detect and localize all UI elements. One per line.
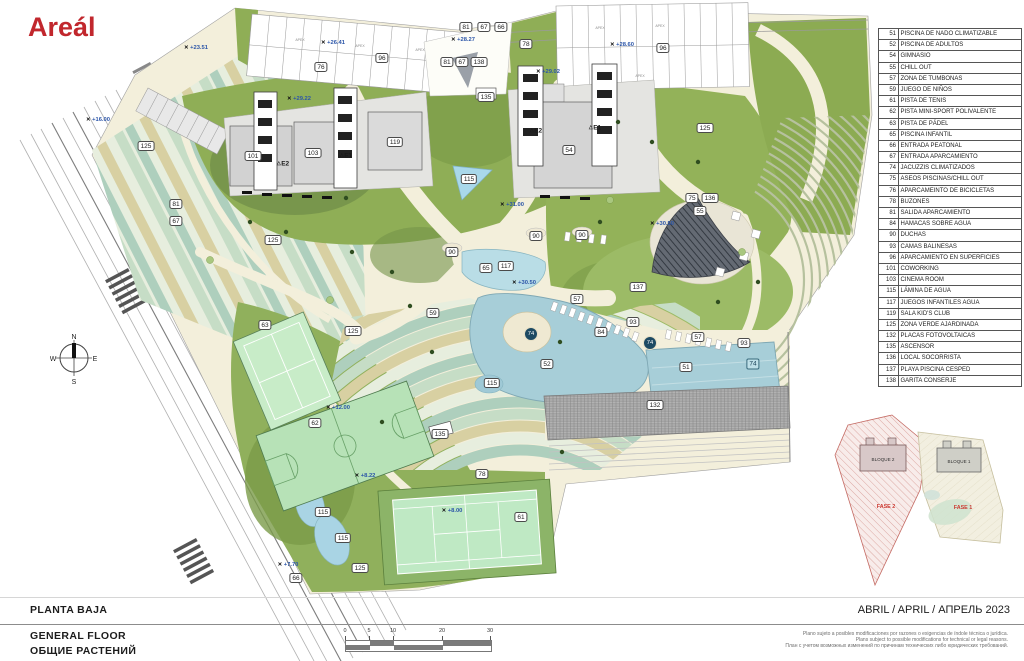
legend-row: 90DUCHAS (878, 230, 1022, 241)
legend-row-number: 90 (879, 230, 899, 240)
compass-s: S (72, 379, 77, 386)
legend-row-label: PISTA MINI-SPORT POLIVALENTE (899, 107, 997, 117)
legend-row-label: ZONA VERDE AJARDINADA (899, 320, 979, 330)
legend-row: 138GARITA CONSERJE (878, 376, 1022, 387)
legend-row-label: SALA KID'S CLUB (899, 309, 951, 319)
legend-row-label: APARCAMIENTO EN SUPERFICIES (899, 253, 1000, 263)
footer-divider-top (0, 597, 1024, 598)
compass-e: E (93, 356, 98, 363)
legend-row: 137PLAYA PISCINA CESPED (878, 365, 1022, 376)
legend-row: 57ZONA DE TUMBONAS (878, 74, 1022, 85)
legend-row-label: PISCINA DE ADULTOS (899, 40, 964, 50)
legend-row-number: 59 (879, 85, 899, 95)
legend-row-label: CAMAS BALINESAS (899, 242, 957, 252)
legend-row-label: HAMACAS SOBRE AGUA (899, 219, 972, 229)
legend-row-number: 135 (879, 342, 899, 352)
legend-row: 135ASCENSOR (878, 342, 1022, 353)
legend-row-number: 52 (879, 40, 899, 50)
legend-row-label: JUEGOS INFANTILES AGUA (899, 298, 980, 308)
scale-segment (370, 641, 394, 646)
legend-row: 74JACUZZIS CLIMATIZADOS (878, 163, 1022, 174)
legend-row-label: APARCAMEINTO DE BICICLETAS (899, 186, 995, 196)
scale-segment (346, 645, 370, 650)
compass-rose: N E S W (50, 330, 98, 386)
plan-title-ru: ОБЩИЕ РАСТЕНИЙ (30, 645, 136, 657)
scale-tick-label: 10 (390, 628, 396, 634)
keyplan-bloque2-label: BLOQUE 2 (872, 457, 895, 462)
scale-tick (369, 636, 370, 640)
legend-row: 81SALIDA APARCAMIENTO (878, 208, 1022, 219)
legend-row-number: 137 (879, 365, 899, 375)
legend-row-label: LOCAL SOCORRISTA (899, 353, 961, 363)
legend-row-number: 54 (879, 51, 899, 61)
scale-tick-label: 0 (343, 628, 346, 634)
legend-row: 52PISCINA DE ADULTOS (878, 40, 1022, 51)
legend-row: 61PISTA DE TENIS (878, 96, 1022, 107)
legend-row-label: ENTRADA APARCAMIENTO (899, 152, 978, 162)
scale-tick (442, 636, 443, 640)
legend-row-number: 119 (879, 309, 899, 319)
legend-row: 136LOCAL SOCORRISTA (878, 353, 1022, 364)
legend-row: 125ZONA VERDE AJARDINADA (878, 320, 1022, 331)
legend-row: 75ASEOS PISCINAS/CHILL OUT (878, 174, 1022, 185)
legend-row-number: 57 (879, 74, 899, 84)
legend-row-number: 55 (879, 63, 899, 73)
page-title: Areál (28, 12, 96, 43)
legend-row: 101COWORKING (878, 264, 1022, 275)
legend-row-label: PISTA DE PÁDEL (899, 119, 949, 129)
scale-tick-label: 30 (487, 628, 493, 634)
legend-row-number: 63 (879, 119, 899, 129)
plan-date: ABRIL / APRIL / АПРЕЛЬ 2023 (858, 604, 1010, 616)
disclaimer-line-ru: План с учетом возможных изменений по при… (785, 643, 1008, 649)
legend-row: 119SALA KID'S CLUB (878, 309, 1022, 320)
scale-tick-label: 5 (367, 628, 370, 634)
legend-row-label: ZONA DE TUMBONAS (899, 74, 963, 84)
legend-row-number: 125 (879, 320, 899, 330)
scale-segment (443, 641, 491, 646)
legend-row-number: 65 (879, 130, 899, 140)
legend-row-number: 76 (879, 186, 899, 196)
legend-row-number: 61 (879, 96, 899, 106)
legend-row-label: ASEOS PISCINAS/CHILL OUT (899, 174, 984, 184)
legend-row-label: ASCENSOR (899, 342, 935, 352)
scale-tick (490, 636, 491, 640)
legend-row-label: COWORKING (899, 264, 939, 274)
legend-row: 55CHILL OUT (878, 63, 1022, 74)
keyplan-bloque1-label: BLOQUE 1 (948, 459, 971, 464)
legend-row-number: 84 (879, 219, 899, 229)
key-plan: BLOQUE 2 BLOQUE 1 FASE 2 FASE 1 (832, 400, 1018, 592)
legend-row-label: ENTRADA PEATONAL (899, 141, 962, 151)
scale-segment (394, 645, 443, 650)
legend-row-label: PLACAS FOTOVOLTAICAS (899, 331, 976, 341)
legend-row-number: 101 (879, 264, 899, 274)
legend-row: 132PLACAS FOTOVOLTAICAS (878, 331, 1022, 342)
legend-row-label: JACUZZIS CLIMATIZADOS (899, 163, 975, 173)
legend-row-number: 51 (879, 29, 899, 39)
legend-row-number: 115 (879, 286, 899, 296)
legend-row-label: SALIDA APARCAMIENTO (899, 208, 971, 218)
legend-row-label: LÁMINA DE AGUA (899, 286, 951, 296)
scale-tick (393, 636, 394, 640)
legend-row-label: DUCHAS (899, 230, 926, 240)
legend-row: 96APARCAMIENTO EN SUPERFICIES (878, 253, 1022, 264)
keyplan-fase2-label: FASE 2 (877, 504, 896, 510)
page: Areál 7696966681677881671381351011031195… (0, 0, 1024, 661)
legend-row-label: JUEGO DE NIÑOS (899, 85, 952, 95)
legend-row-label: GIMNASIO (899, 51, 931, 61)
scale-bar: 05102030 (345, 628, 493, 656)
legend-row-number: 81 (879, 208, 899, 218)
plan-title-en: GENERAL FLOOR (30, 630, 126, 642)
legend-row: 115LÁMINA DE AGUA (878, 286, 1022, 297)
legend-row: 63PISTA DE PÁDEL (878, 119, 1022, 130)
legend-row: 103CINEMA ROOM (878, 275, 1022, 286)
legend-row-label: PLAYA PISCINA CESPED (899, 365, 971, 375)
legend-row: 84HAMACAS SOBRE AGUA (878, 219, 1022, 230)
legend-table: 51PISCINA DE NADO CLIMATIZABLE52PISCINA … (878, 28, 1022, 387)
legend-row-number: 78 (879, 197, 899, 207)
keyplan-fase1-label: FASE 1 (954, 505, 973, 511)
footer-divider (0, 624, 1024, 625)
footer-disclaimer: Plano sujeto a posibles modificaciones p… (785, 631, 1008, 650)
plan-title-es: PLANTA BAJA (30, 604, 107, 616)
legend-row-label: GARITA CONSERJE (899, 376, 957, 386)
legend-row-number: 62 (879, 107, 899, 117)
legend-row-number: 132 (879, 331, 899, 341)
legend-row: 117JUEGOS INFANTILES AGUA (878, 298, 1022, 309)
compass-w: W (50, 356, 57, 363)
compass-n: N (71, 334, 76, 341)
legend-row-number: 67 (879, 152, 899, 162)
legend-row-label: CINEMA ROOM (899, 275, 944, 285)
legend-row-number: 96 (879, 253, 899, 263)
legend-row: 93CAMAS BALINESAS (878, 242, 1022, 253)
legend-row: 78BUZONES (878, 197, 1022, 208)
scale-bar-frame (345, 640, 492, 652)
legend-row-label: PISTA DE TENIS (899, 96, 947, 106)
legend-row: 59JUEGO DE NIÑOS (878, 85, 1022, 96)
legend-row-number: 75 (879, 174, 899, 184)
legend-row-number: 93 (879, 242, 899, 252)
legend-row-label: PISCINA DE NADO CLIMATIZABLE (899, 29, 998, 39)
scale-tick (345, 636, 346, 640)
scale-tick-label: 20 (439, 628, 445, 634)
legend-row: 67ENTRADA APARCAMIENTO (878, 152, 1022, 163)
legend-row-label: CHILL OUT (899, 63, 932, 73)
legend-row: 65PISCINA INFANTIL (878, 130, 1022, 141)
legend-row-number: 138 (879, 376, 899, 386)
legend-row-number: 103 (879, 275, 899, 285)
legend-row: 76APARCAMEINTO DE BICICLETAS (878, 186, 1022, 197)
legend-row-label: BUZONES (899, 197, 930, 207)
legend-row-number: 74 (879, 163, 899, 173)
legend-row-number: 117 (879, 298, 899, 308)
legend-row-label: PISCINA INFANTIL (899, 130, 953, 140)
legend-row-number: 66 (879, 141, 899, 151)
legend-row: 51PISCINA DE NADO CLIMATIZABLE (878, 29, 1022, 40)
keyplan-fase2-area (835, 415, 928, 585)
legend-row: 54GIMNASIO (878, 51, 1022, 62)
legend-row: 66ENTRADA PEATONAL (878, 141, 1022, 152)
legend-row-number: 136 (879, 353, 899, 363)
legend-row: 62PISTA MINI-SPORT POLIVALENTE (878, 107, 1022, 118)
